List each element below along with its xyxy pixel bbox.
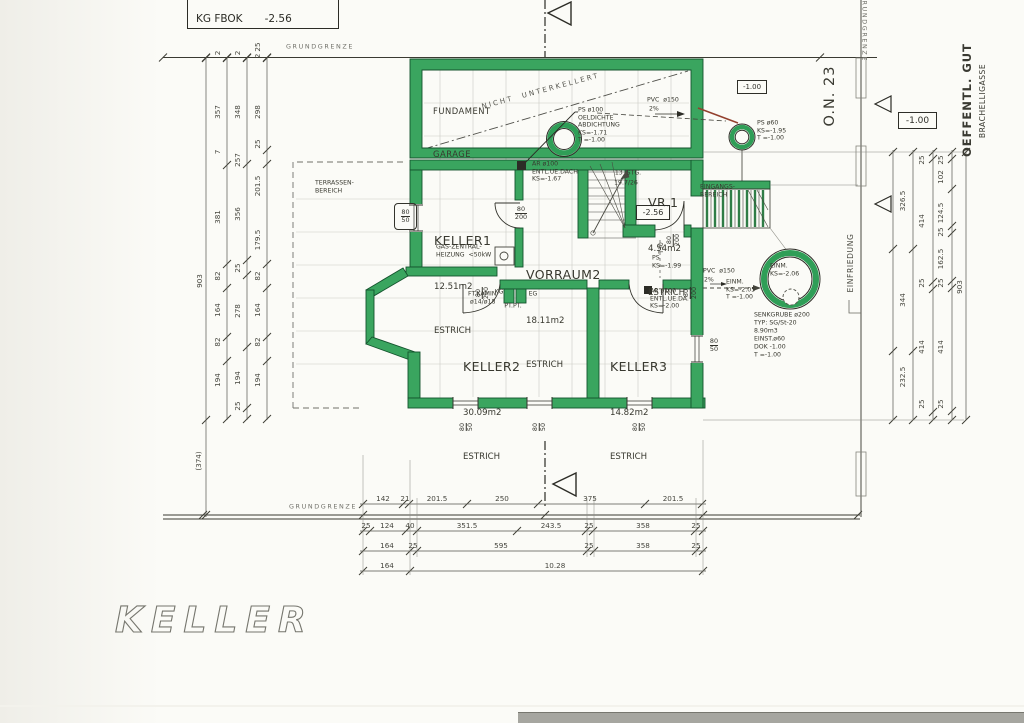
annotation-line: EINST.ø60 bbox=[754, 337, 785, 344]
annotation-line: FT.KAMIN bbox=[468, 292, 496, 299]
fence-label: EINFRIEDUNG bbox=[847, 234, 855, 293]
dim-label: 414 bbox=[918, 340, 926, 354]
annotation-line: T =-1.00 bbox=[754, 353, 781, 360]
annotation-line: TYP: SG/St-20 bbox=[754, 321, 797, 328]
dim-label: 25 bbox=[361, 522, 370, 530]
annotation-line: DOK -1.00 bbox=[754, 345, 786, 352]
dim-label: 232.5 bbox=[899, 367, 907, 388]
dim-label: 326.5 bbox=[899, 191, 907, 212]
dim-label: 194 bbox=[254, 373, 262, 387]
dim-label: 356 bbox=[234, 207, 242, 221]
dim-label: 25 bbox=[918, 278, 926, 287]
annotation-line: T =-1.00 bbox=[578, 138, 605, 145]
dim-label: 250 bbox=[495, 495, 509, 503]
drain-ps60 bbox=[729, 124, 755, 150]
annotation-line: KS=-1.67 bbox=[532, 177, 561, 184]
dim-label: 348 bbox=[234, 105, 242, 119]
boundary-label: GRUNDGRENZE bbox=[286, 44, 354, 51]
dim-label: (374) bbox=[195, 451, 203, 470]
dim-label: 201.5 bbox=[663, 495, 684, 503]
dim-label: 25 bbox=[691, 522, 700, 530]
dim-label: 25 bbox=[937, 155, 945, 164]
dim-overall: 903 bbox=[956, 280, 964, 294]
dim-label: 358 bbox=[636, 542, 650, 550]
door-size-label: 80 200 bbox=[511, 206, 531, 220]
dim-label: 194 bbox=[234, 371, 242, 385]
public-land-label: OEFFENTL. GUT bbox=[961, 43, 973, 157]
scanned-floor-plan-sheet: KELLER KG FBOK -2.56 FUNDAMENT GARAGE NI… bbox=[0, 0, 1024, 723]
annotation-line: EINM. bbox=[770, 264, 788, 271]
level-badge-plan: -1.00 bbox=[737, 80, 767, 94]
dim-label: 82 bbox=[214, 271, 222, 280]
dim-label: 2 bbox=[254, 54, 262, 59]
window-size-label: 80 50 bbox=[394, 203, 417, 230]
dim-label: 201.5 bbox=[254, 176, 262, 197]
dim-label: 414 bbox=[937, 340, 945, 354]
dim-label: 25 bbox=[918, 399, 926, 408]
annotation-line: PT.PT. bbox=[504, 304, 521, 311]
dim-label: 21 bbox=[400, 495, 409, 503]
door-size-label: 80 200 bbox=[666, 230, 680, 250]
street-name: BRACHELLIGASSE bbox=[979, 64, 987, 138]
dim-label: 194 bbox=[214, 373, 222, 387]
dim-label: 351.5 bbox=[457, 522, 478, 530]
dim-label: 142 bbox=[376, 495, 390, 503]
annotation-line: KS=-1.99 bbox=[652, 263, 681, 270]
dim-label: 298 bbox=[254, 105, 262, 119]
senkgrube bbox=[760, 249, 820, 309]
dim-label: 595 bbox=[494, 542, 508, 550]
dim-label: 82 bbox=[254, 337, 262, 346]
boundary-label: GRUNDGRENZE bbox=[861, 0, 868, 62]
plan-title: KELLER bbox=[115, 600, 314, 641]
window-size-label: 80 50 bbox=[532, 418, 546, 436]
room-keller2: KELLER2 30.09m2 ESTRICH bbox=[463, 325, 520, 497]
annotation-line: T =-1.00 bbox=[757, 136, 784, 143]
dim-label: 25 bbox=[937, 399, 945, 408]
dim-label: 25 bbox=[937, 227, 945, 236]
dim-label: 375 bbox=[583, 495, 597, 503]
dim-label: 25 bbox=[408, 542, 417, 550]
dim-label: 124.5 bbox=[937, 203, 945, 224]
dim-label: 25 bbox=[234, 401, 242, 410]
room-keller3: KELLER3 14.82m2 ESTRICH bbox=[610, 325, 667, 497]
annotation-line: TERRASSEN- bbox=[315, 181, 354, 188]
level-arrow-icon bbox=[875, 196, 891, 212]
dim-label: 25 bbox=[937, 278, 945, 287]
dim-label: 164 bbox=[380, 542, 394, 550]
window-size-label: 80 50 bbox=[705, 338, 723, 352]
dim-label: 102 bbox=[937, 170, 945, 184]
room-vorraum2: VORRAUM2 18.11m2 ESTRICH bbox=[526, 233, 601, 405]
dim-label: 357 bbox=[214, 105, 222, 119]
dim-label: 124 bbox=[380, 522, 394, 530]
annotation-line: KS=-2.06 bbox=[770, 272, 799, 279]
dim-label: 25 bbox=[584, 522, 593, 530]
annotation-line: ø14/ø18 bbox=[470, 300, 495, 307]
dim-label: 201.5 bbox=[427, 495, 448, 503]
dim-label: 2 bbox=[234, 51, 242, 56]
annotation-line: T =-1.00 bbox=[726, 295, 753, 302]
level-arrow-icon bbox=[875, 96, 891, 112]
dim-label: 164 bbox=[254, 303, 262, 317]
annotation-line: KS=-2.00 bbox=[650, 304, 679, 311]
annotation-line: 2% bbox=[649, 107, 659, 114]
dim-label: 257 bbox=[234, 153, 242, 167]
drain-ps100 bbox=[547, 122, 582, 157]
window-size-label: 80 50 bbox=[459, 418, 473, 436]
annotation-line: 8.90m3 bbox=[754, 329, 778, 336]
dim-label: 164 bbox=[380, 562, 394, 570]
dim-label: 25 bbox=[584, 542, 593, 550]
dim-label: 40 bbox=[405, 522, 414, 530]
section-marker-icon bbox=[553, 473, 576, 496]
house-number: O.N. 23 bbox=[823, 66, 839, 127]
dim-label: 179.5 bbox=[254, 230, 262, 251]
annotation-line: 13 STG. bbox=[615, 171, 641, 178]
dim-label: 344 bbox=[899, 293, 907, 307]
window-size-label: 80 50 bbox=[632, 418, 646, 436]
boundary-label: GRUNDGRENZE bbox=[289, 504, 357, 511]
dim-label: 82 bbox=[214, 337, 222, 346]
dim-label: 162.5 bbox=[937, 249, 945, 270]
annotation-line: SENKGRUBE ø200 bbox=[754, 313, 810, 320]
dim-label: 381 bbox=[214, 210, 222, 224]
title-box-value: -2.56 bbox=[265, 13, 292, 25]
dim-label: 414 bbox=[918, 214, 926, 228]
einfriedung-bracket bbox=[849, 300, 861, 313]
dim-label: 10.28 bbox=[545, 562, 566, 570]
ar-marker-icon bbox=[517, 161, 526, 170]
dim-label: 25 bbox=[234, 263, 242, 272]
dim-label: 7 bbox=[214, 150, 222, 155]
dim-label: 164 bbox=[214, 303, 222, 317]
section-marker-icon bbox=[548, 2, 571, 25]
annotation-line: PVC ø150 bbox=[703, 269, 735, 276]
fire-door-label: T30 bbox=[659, 242, 665, 253]
annotation-line: BEREICH bbox=[315, 189, 342, 196]
annotation-line: EG bbox=[529, 292, 538, 299]
level-badge-vr1: -2.56 bbox=[636, 205, 670, 220]
dim-label: 358 bbox=[636, 522, 650, 530]
annotation-line: KG bbox=[495, 290, 504, 297]
dim-overall: 903 bbox=[196, 274, 204, 288]
dim-label: 25 bbox=[254, 42, 262, 51]
dim-label: 25 bbox=[254, 139, 262, 148]
annotation-line: GAS-ZENTRAL- bbox=[436, 245, 482, 252]
dim-label: 243.5 bbox=[541, 522, 562, 530]
dim-label: 25 bbox=[918, 155, 926, 164]
dim-label: 2 bbox=[214, 51, 222, 56]
annotation-line: EINGANGS- bbox=[700, 185, 735, 192]
annotation-line: PVC ø150 bbox=[647, 98, 679, 105]
annotation-line: 2% bbox=[704, 278, 714, 285]
room-garage: FUNDAMENT GARAGE bbox=[433, 72, 491, 194]
title-box-label: KG FBOK bbox=[196, 13, 243, 25]
title-box: KG FBOK -2.56 bbox=[187, 0, 339, 29]
annotation-line: BEREICH bbox=[700, 193, 727, 200]
dim-label: 278 bbox=[234, 304, 242, 318]
annotation-line: HEIZUNG <50kW bbox=[436, 253, 491, 260]
dim-label: 82 bbox=[254, 271, 262, 280]
level-badge-street: -1.00 bbox=[898, 112, 937, 129]
boiler bbox=[495, 247, 514, 265]
dim-label: 25 bbox=[691, 542, 700, 550]
annotation-line: 19.7/26 bbox=[614, 181, 638, 188]
